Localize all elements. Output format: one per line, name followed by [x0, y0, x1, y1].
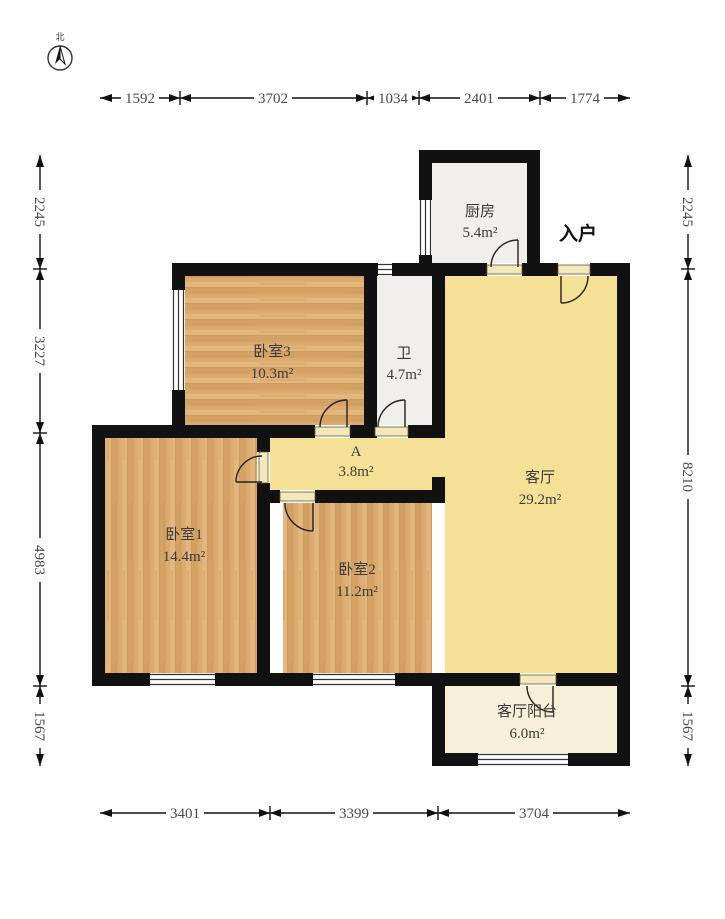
- wall-segment: [172, 263, 378, 276]
- bedroom1-name: 卧室1: [165, 526, 203, 543]
- balcony-name: 客厅阳台: [497, 703, 557, 720]
- balcony-door-sill: [520, 675, 556, 684]
- bedroom2-name: 卧室2: [338, 561, 376, 578]
- bath-name: 卫: [396, 346, 411, 362]
- wall-segment: [419, 150, 540, 163]
- kitchen-window: [419, 200, 432, 255]
- wall-segment: [617, 263, 630, 766]
- wall-segment: [364, 263, 377, 438]
- dim-label: 2245: [31, 197, 47, 227]
- dim-label: 1592: [125, 91, 155, 107]
- wall-segment: [270, 490, 280, 503]
- bedroom2-area: 11.2m²: [336, 584, 378, 600]
- bath-window: [378, 263, 392, 276]
- wall-segment: [350, 425, 375, 438]
- wall-segment: [527, 150, 540, 276]
- wall-segment: [432, 753, 478, 766]
- dim-bottom: 3401 3399 3704: [100, 805, 630, 822]
- wall-segment: [172, 276, 185, 290]
- dim-label: 1774: [570, 91, 601, 107]
- wall-segment: [92, 425, 315, 438]
- bath-area: 4.7m²: [387, 367, 422, 383]
- kitchen-area: 5.4m²: [463, 225, 498, 241]
- dim-top: 1592 3702 1034 2401 1774: [100, 90, 630, 107]
- bedroom2-window: [313, 673, 395, 686]
- wall-segment: [522, 263, 558, 276]
- dim-left: 2245 3227 4983 1567: [31, 155, 47, 766]
- bedroom3-area: 10.3m²: [251, 366, 294, 382]
- kitchen-door-sill: [487, 265, 522, 274]
- hall-area: 3.8m²: [339, 464, 374, 480]
- compass-icon: 北: [48, 32, 72, 70]
- bath-door-sill: [375, 427, 408, 436]
- dim-label: 3227: [31, 336, 47, 367]
- bedroom3-window: [172, 290, 185, 390]
- bedroom2-door-sill: [280, 492, 315, 501]
- living-area: 29.2m²: [519, 492, 562, 508]
- wall-segment: [419, 163, 432, 200]
- dim-label: 4983: [31, 545, 47, 575]
- bedroom1-window: [150, 673, 215, 686]
- wall-segment: [92, 673, 150, 686]
- wall-segment: [568, 753, 630, 766]
- entrance-door-sill: [558, 265, 590, 274]
- floor-plan-canvas: 厨房 5.4m² 卧室3 10.3m² 卫 4.7m² A 3.8m² 客厅 2…: [0, 0, 725, 919]
- wall-segment: [395, 673, 520, 686]
- wall-segment: [92, 438, 105, 686]
- dim-label: 2401: [464, 91, 494, 107]
- dim-label: 2245: [679, 197, 695, 227]
- bedroom1-area: 14.4m²: [163, 549, 206, 565]
- dim-label: 3704: [519, 806, 550, 822]
- living-name: 客厅: [525, 469, 555, 486]
- balcony-area: 6.0m²: [510, 726, 545, 742]
- wall-segment: [419, 255, 432, 263]
- dim-label: 1567: [31, 711, 47, 742]
- dim-label: 3399: [339, 806, 369, 822]
- wall-segment: [215, 673, 313, 686]
- wall-segment: [315, 490, 445, 503]
- dim-label: 3401: [170, 806, 200, 822]
- dim-label: 3702: [258, 91, 288, 107]
- balcony-window: [478, 753, 568, 766]
- entrance-label: 入户: [559, 222, 597, 245]
- dim-label: 8210: [679, 462, 695, 492]
- wall-segment: [408, 425, 445, 438]
- wall-segment: [257, 438, 270, 452]
- wall-segment: [257, 483, 270, 686]
- compass-north-label: 北: [55, 32, 64, 42]
- wall-segment: [432, 263, 445, 438]
- dim-right: 2245 8210 1567: [679, 155, 695, 766]
- floor-plan-svg: 厨房 5.4m² 卧室3 10.3m² 卫 4.7m² A 3.8m² 客厅 2…: [0, 0, 725, 919]
- dim-label: 1034: [378, 91, 409, 107]
- bedroom3-door-sill: [315, 427, 350, 436]
- kitchen-name: 厨房: [465, 203, 495, 220]
- bedroom3-name: 卧室3: [253, 343, 291, 360]
- dim-label: 1567: [679, 711, 695, 742]
- hall-name: A: [351, 444, 362, 460]
